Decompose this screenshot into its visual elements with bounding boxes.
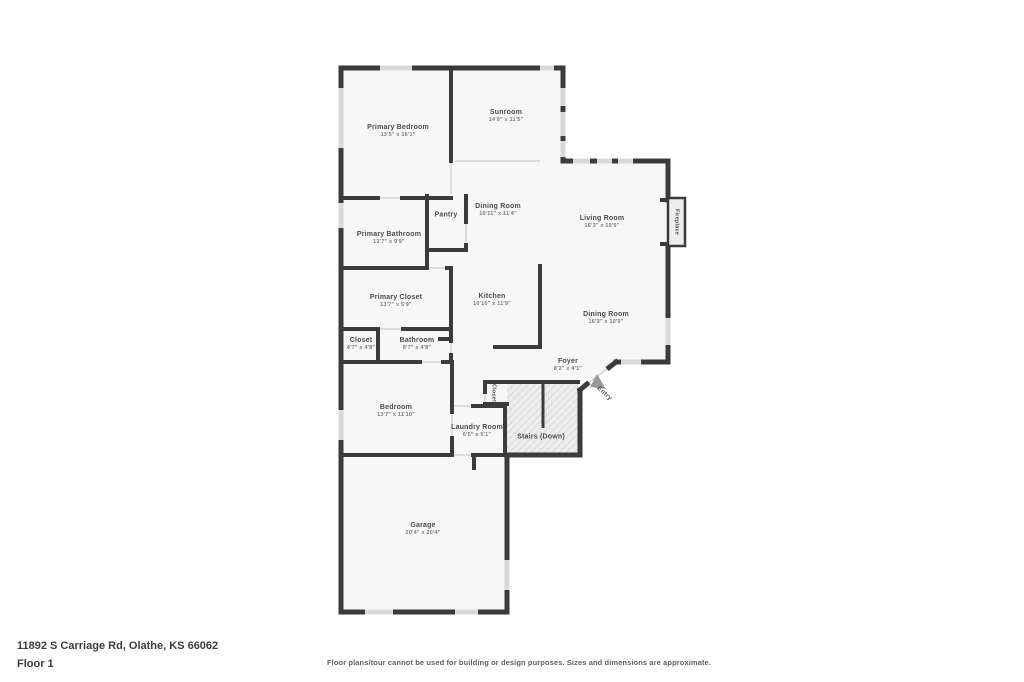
- room-label-laundry-room: Laundry Room 6'5" x 5'1": [451, 423, 503, 439]
- room-label-closet: Closet 4'7" x 4'8": [347, 336, 375, 352]
- room-name: Closet: [347, 336, 375, 345]
- room-dims: 13'7" x 11'10": [377, 412, 415, 419]
- room-dims: 14'0" x 11'5": [489, 117, 524, 124]
- address-text: 11892 S Carriage Rd, Olathe, KS 66062: [17, 640, 218, 652]
- floor-label: Floor 1: [17, 658, 54, 670]
- room-dims: 8'2" x 4'1": [554, 366, 582, 373]
- room-name: Kitchen: [473, 292, 511, 301]
- room-dims: 4'7" x 4'8": [347, 345, 375, 352]
- room-label-foyer: Foyer 8'2" x 4'1": [554, 357, 582, 373]
- room-label-bathroom: Bathroom 8'7" x 4'8": [400, 336, 435, 352]
- room-label-foyer-closet: Closet: [489, 384, 496, 402]
- room-dims: 6'5" x 5'1": [451, 432, 503, 439]
- room-name: Stairs (Down): [517, 432, 565, 441]
- room-dims: 20'4" x 20'4": [406, 530, 441, 537]
- room-dims: 8'7" x 4'8": [400, 345, 435, 352]
- floor-plan-page: { "plan": { "rooms": [ {"name": "Primary…: [0, 0, 1024, 682]
- room-label-fireplace: Fireplace: [672, 209, 679, 235]
- room-dims: 13'5" x 16'1": [367, 132, 429, 139]
- room-dims: 16'3" x 10'0": [583, 319, 629, 326]
- room-name: Primary Closet: [370, 293, 422, 302]
- room-dims: 10'10" x 11'9": [473, 301, 511, 308]
- disclaimer-text: Floor plans/tour cannot be used for buil…: [327, 658, 711, 667]
- floor-plan-drawing: [0, 0, 1024, 682]
- room-name: Foyer: [554, 357, 582, 366]
- room-label-dining-room-upper: Dining Room 10'11" x 11'4": [475, 202, 521, 218]
- room-name: Primary Bedroom: [367, 123, 429, 132]
- room-name: Closet: [489, 384, 496, 402]
- room-name: Dining Room: [583, 310, 629, 319]
- room-label-stairs-down: Stairs (Down): [517, 432, 565, 441]
- room-label-dining-room-lower: Dining Room 16'3" x 10'0": [583, 310, 629, 326]
- floor-plan: Primary Bedroom 13'5" x 16'1" Sunroom 14…: [0, 0, 1024, 682]
- room-label-primary-closet: Primary Closet 13'7" x 5'9": [370, 293, 422, 309]
- room-label-primary-bedroom: Primary Bedroom 13'5" x 16'1": [367, 123, 429, 139]
- room-name: Fireplace: [672, 209, 679, 235]
- room-dims: 13'7" x 5'9": [370, 302, 422, 309]
- stairs-region: [507, 380, 578, 455]
- room-label-kitchen: Kitchen 10'10" x 11'9": [473, 292, 511, 308]
- room-label-living-room: Living Room 16'3" x 15'5": [580, 214, 625, 230]
- room-dims: 16'3" x 15'5": [580, 223, 625, 230]
- room-name: Sunroom: [489, 108, 524, 117]
- room-label-bedroom: Bedroom 13'7" x 11'10": [377, 403, 415, 419]
- room-name: Pantry: [435, 210, 458, 219]
- room-label-primary-bathroom: Primary Bathroom 13'7" x 9'9": [357, 230, 421, 246]
- room-name: Primary Bathroom: [357, 230, 421, 239]
- room-name: Living Room: [580, 214, 625, 223]
- room-label-sunroom: Sunroom 14'0" x 11'5": [489, 108, 524, 124]
- room-name: Bedroom: [377, 403, 415, 412]
- room-dims: 10'11" x 11'4": [475, 211, 521, 218]
- room-dims: 13'7" x 9'9": [357, 239, 421, 246]
- room-label-pantry: Pantry: [435, 210, 458, 219]
- room-name: Bathroom: [400, 336, 435, 345]
- room-label-garage: Garage 20'4" x 20'4": [406, 521, 441, 537]
- room-name: Dining Room: [475, 202, 521, 211]
- room-name: Laundry Room: [451, 423, 503, 432]
- room-name: Garage: [406, 521, 441, 530]
